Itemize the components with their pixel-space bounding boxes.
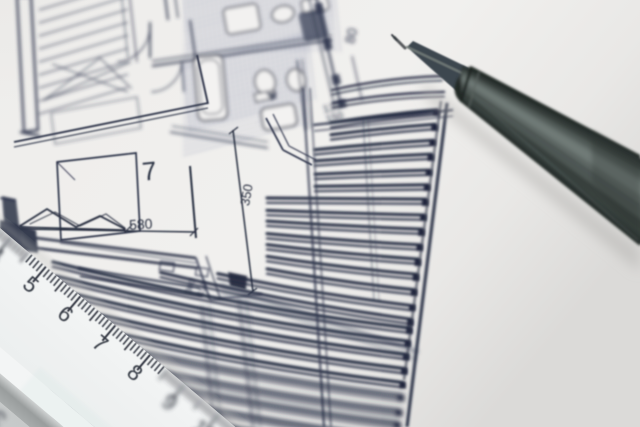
svg-text:580: 580 [129, 216, 153, 233]
